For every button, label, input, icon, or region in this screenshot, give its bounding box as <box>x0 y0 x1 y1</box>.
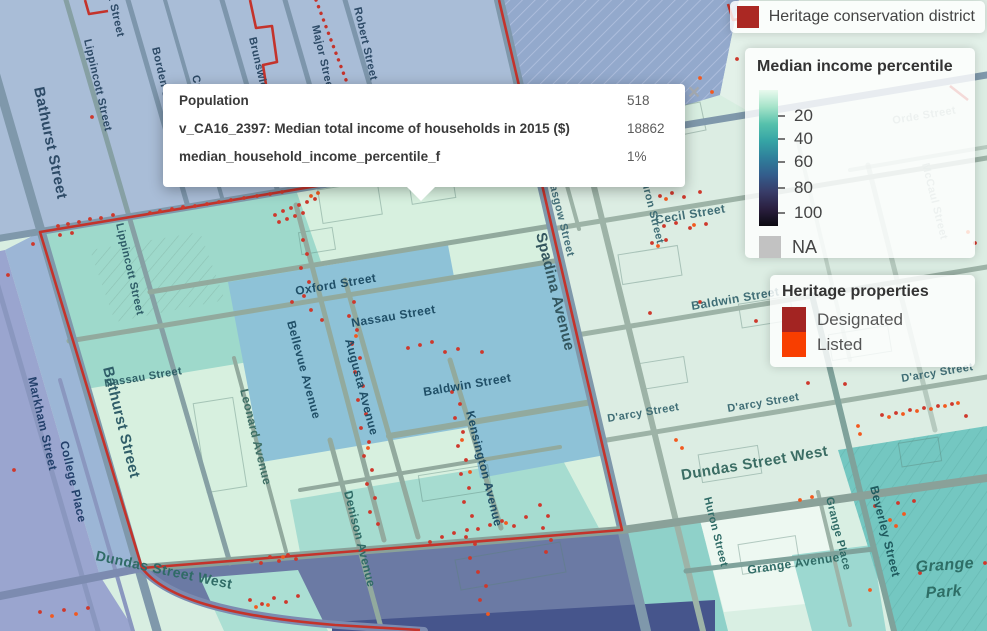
popup-row-population: Population 518 <box>179 93 669 121</box>
listed-label: Listed <box>817 335 862 355</box>
popup-row-percentile: median_household_income_percentile_f 1% <box>179 149 669 177</box>
legend-median-income: Median income percentile 20 40 60 80 100… <box>745 48 975 258</box>
income-gradient-bar <box>759 90 778 226</box>
district-swatch <box>737 6 759 28</box>
na-swatch <box>759 236 781 258</box>
income-tick-80: 80 <box>778 178 813 198</box>
income-tick-60: 60 <box>778 152 813 172</box>
income-tick-40: 40 <box>778 129 813 149</box>
listed-swatch <box>782 332 806 357</box>
income-na-row: NA <box>759 236 817 258</box>
park-label-park: Park <box>925 582 963 602</box>
income-legend-title: Median income percentile <box>757 58 953 76</box>
income-tick-20: 20 <box>778 106 813 126</box>
heritage-legend-title: Heritage properties <box>782 283 963 301</box>
designated-swatch <box>782 307 806 332</box>
legend-heritage-district: Heritage conservation district <box>730 1 985 33</box>
income-tick-100: 100 <box>778 203 822 223</box>
popup-row-median-income: v_CA16_2397: Median total income of hous… <box>179 121 669 149</box>
map-app: Bathurst Street Bathurst Street Lippinco… <box>0 0 987 631</box>
legend-item-listed: Listed <box>782 332 963 357</box>
legend-heritage-properties: Heritage properties Designated Listed <box>770 275 975 367</box>
district-legend-label: Heritage conservation district <box>769 8 975 26</box>
legend-item-designated: Designated <box>782 307 963 332</box>
feature-popup: Population 518 v_CA16_2397: Median total… <box>163 84 685 187</box>
na-label: NA <box>792 237 817 258</box>
designated-label: Designated <box>817 310 903 330</box>
popup-close-button[interactable]: × <box>683 82 705 104</box>
